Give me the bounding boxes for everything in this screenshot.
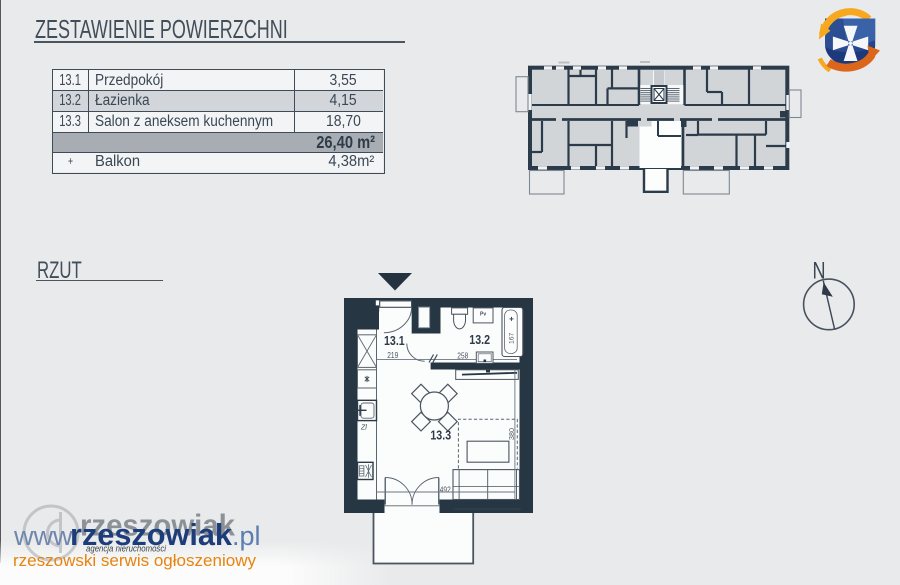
svg-text:Pv: Pv bbox=[480, 312, 486, 318]
svg-text:.pl: .pl bbox=[232, 521, 261, 551]
svg-text:Zl: Zl bbox=[360, 425, 367, 432]
svg-text:492: 492 bbox=[440, 485, 451, 495]
svg-text:167: 167 bbox=[509, 332, 516, 344]
svg-text:13.1: 13.1 bbox=[384, 333, 405, 348]
svg-text:258: 258 bbox=[457, 351, 468, 361]
svg-text:www.: www. bbox=[13, 521, 79, 551]
svg-text:13.2: 13.2 bbox=[469, 332, 490, 347]
svg-text:rzeszowski serwis ogłoszeniowy: rzeszowski serwis ogłoszeniowy bbox=[13, 552, 257, 570]
svg-text:219: 219 bbox=[387, 350, 398, 360]
svg-text:13.3: 13.3 bbox=[430, 427, 451, 442]
